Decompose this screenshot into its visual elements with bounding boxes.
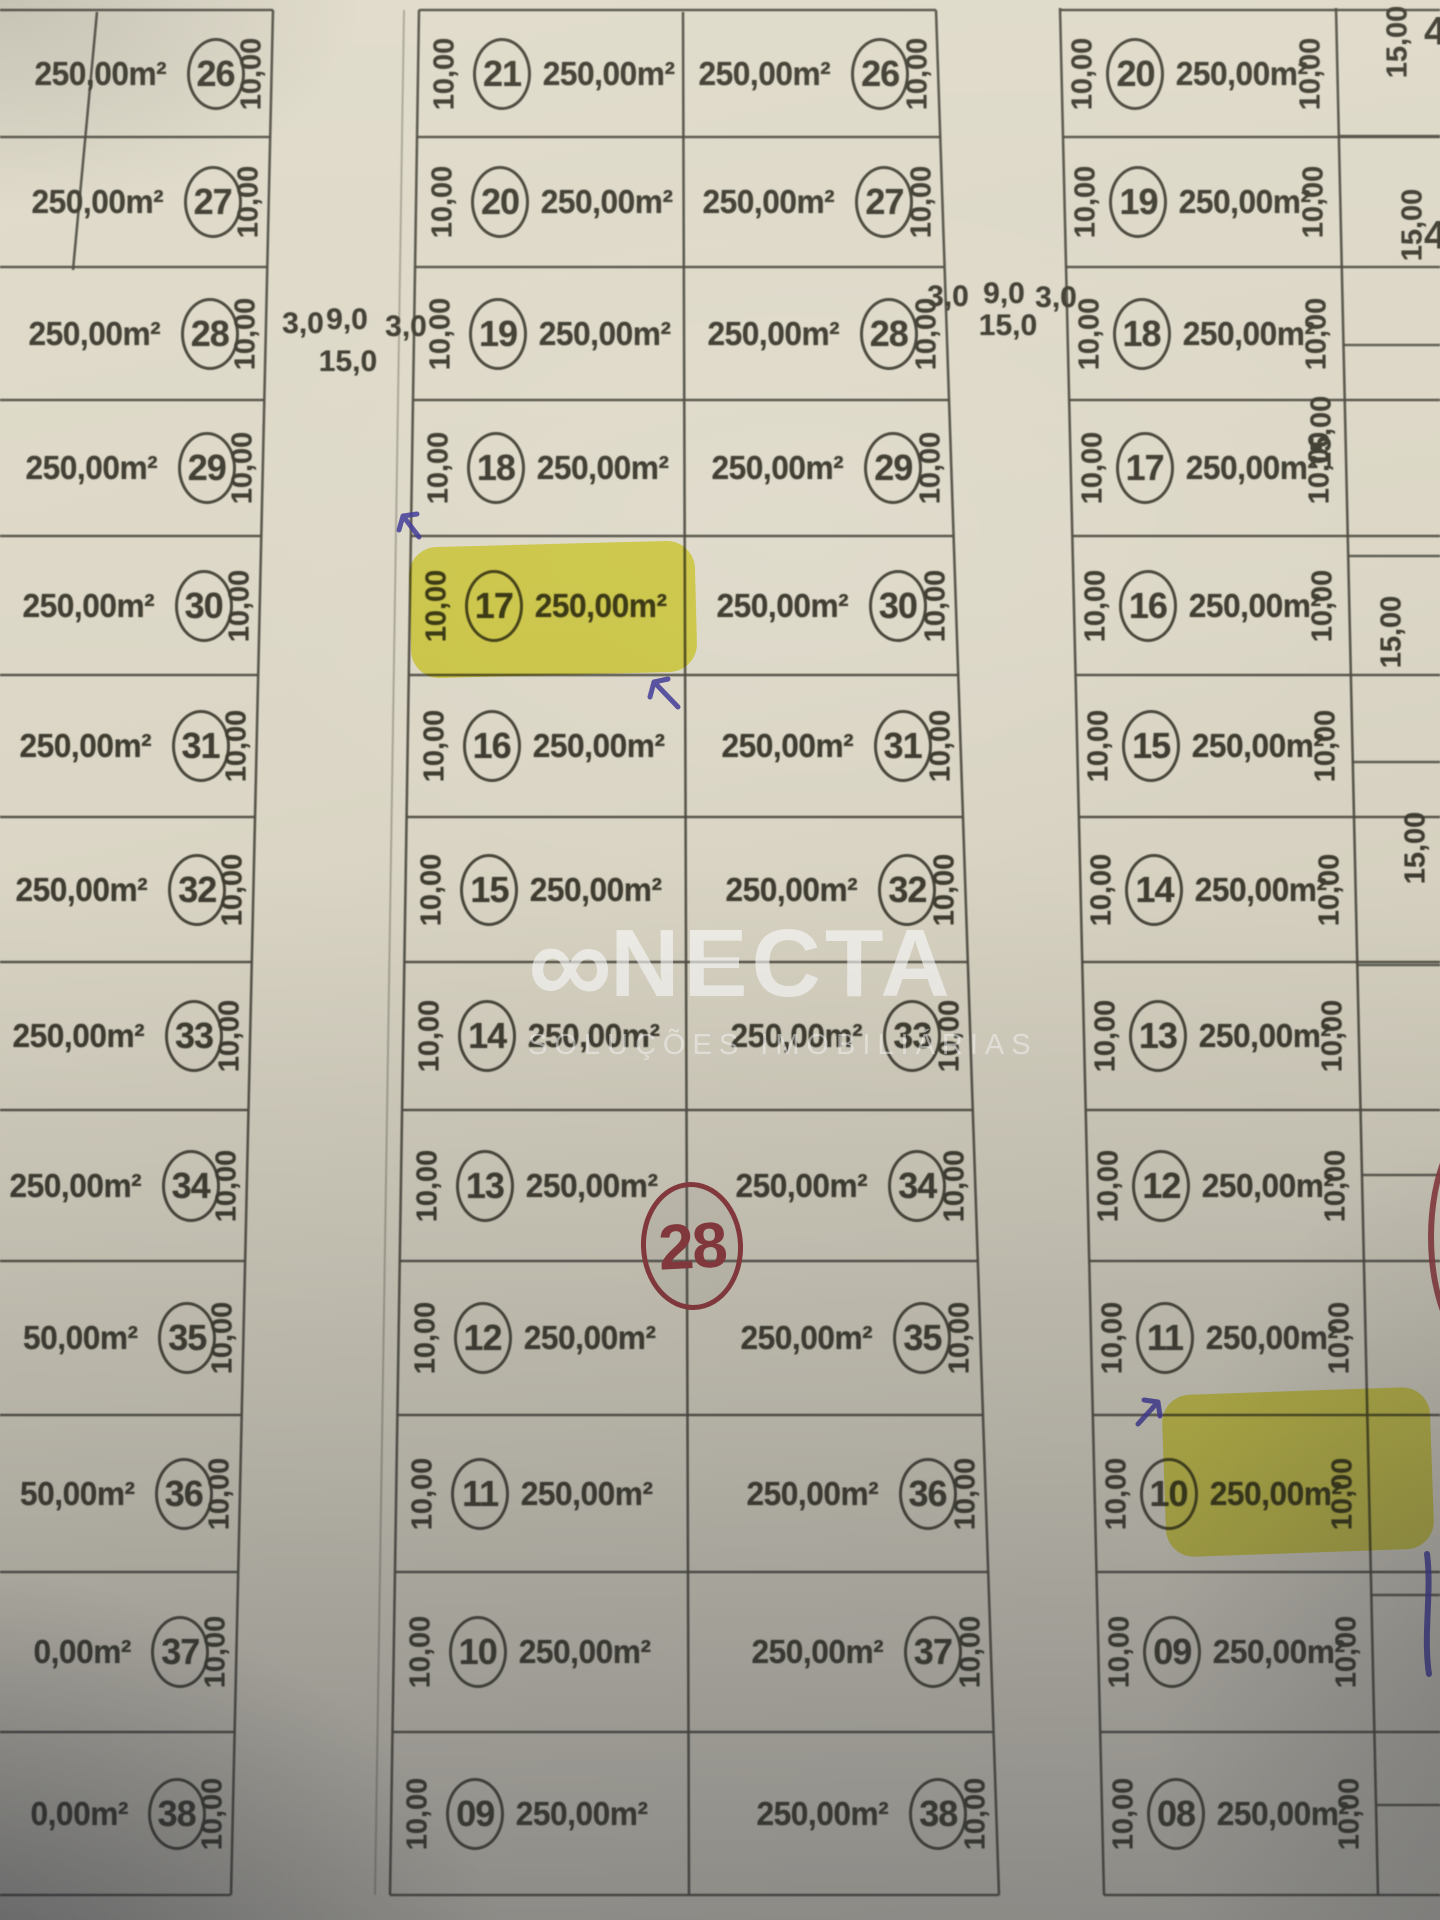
pen-stroke-mark (1427, 1554, 1429, 1674)
pen-marks-layer (0, 0, 1440, 1920)
plat-map-photo: 250,00m²2610,0010,0021250,00m²250,00m²26… (0, 0, 1440, 1920)
pen-arrow-icon (399, 514, 419, 537)
pen-arrow-icon (650, 679, 678, 707)
pen-arrow-icon (1138, 1400, 1160, 1424)
